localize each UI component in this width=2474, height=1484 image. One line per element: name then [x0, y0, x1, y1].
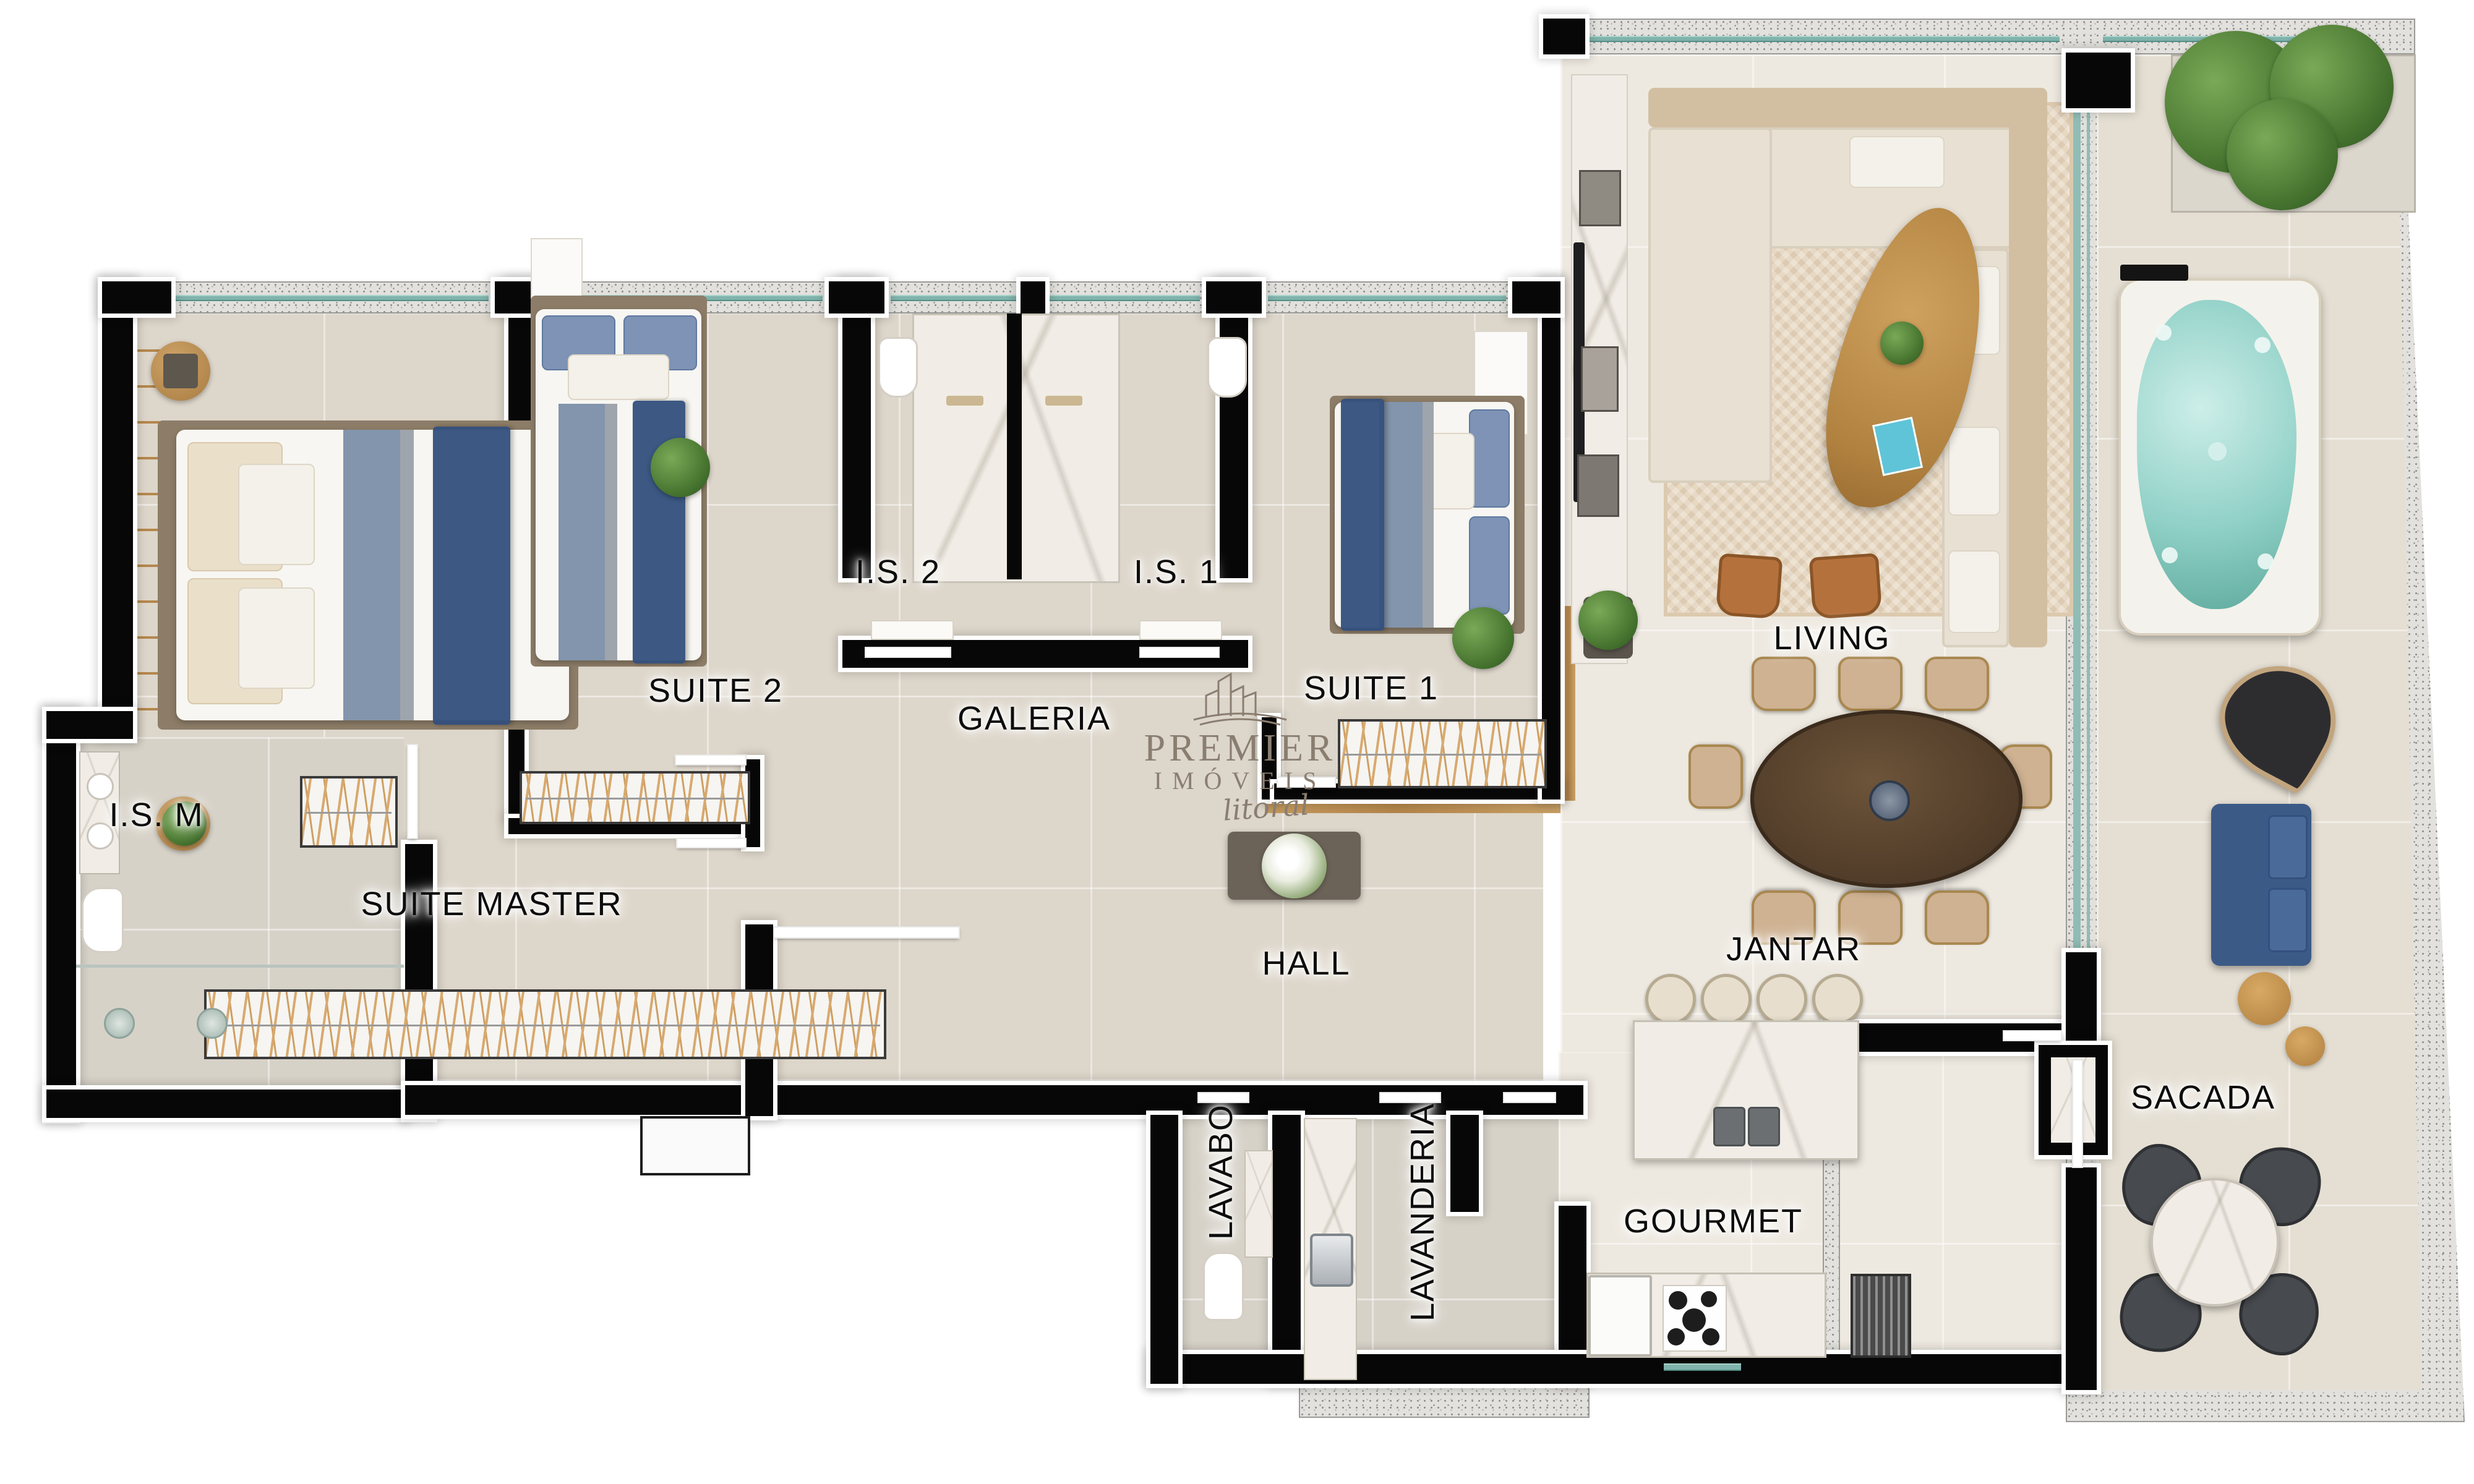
- hot-tub-jet: [2155, 325, 2172, 341]
- shower-fixture-is2: [946, 396, 983, 406]
- pier-top-3: [829, 281, 884, 313]
- pier-living-corner: [1543, 19, 1585, 54]
- room-label-sacada: SACADA: [2131, 1078, 2275, 1117]
- artwork: [1577, 454, 1619, 517]
- buildings-logo-icon: [1184, 668, 1296, 730]
- island-stool: [1812, 974, 1863, 1025]
- nightstand-tray: [163, 354, 198, 388]
- hot-tub-water: [2137, 300, 2296, 609]
- hot-tub-control-panel: [2120, 265, 2188, 281]
- room-label-hall: HALL: [1262, 944, 1350, 983]
- door-is1: [1141, 648, 1218, 657]
- bed-runner-shadow: [1423, 402, 1434, 628]
- door-lavabo: [1199, 1093, 1248, 1102]
- toilet-lavabo: [1203, 1252, 1244, 1321]
- room-label-is1: I.S. 1: [1134, 553, 1219, 591]
- accent-chair-leather: [1716, 553, 1783, 620]
- hot-tub-jet: [2162, 547, 2178, 563]
- wardrobe-rail: [210, 1025, 880, 1026]
- wardrobe-suite-1: [1338, 719, 1547, 788]
- burner: [1701, 1291, 1717, 1307]
- side-table-balcony: [2238, 972, 2291, 1025]
- burner: [1667, 1328, 1685, 1345]
- sofa-pillow: [1948, 427, 2000, 516]
- pier-sacada-top: [2066, 53, 2131, 108]
- window-living-top: [1590, 36, 2060, 42]
- window-suite-1: [1268, 295, 1506, 301]
- sofa-back-right: [2009, 88, 2047, 647]
- floor-plan-canvas: SUITE MASTER I.S. M SUITE 2 I.S. 2 I.S. …: [0, 0, 2474, 1484]
- door-suite-master: [774, 927, 959, 937]
- door-grill-sacada: [2004, 1031, 2061, 1040]
- shower-head-ism-2: [197, 1008, 228, 1039]
- room-label-gourmet: GOURMET: [1624, 1202, 1803, 1240]
- bed-pillow: [1469, 516, 1510, 615]
- burner: [1669, 1291, 1687, 1310]
- wall-is1-suite-1: [1220, 281, 1248, 578]
- dining-chair: [1838, 657, 1903, 711]
- shower-fixture-is1: [1045, 396, 1082, 406]
- burner: [1702, 1328, 1719, 1345]
- wardrobe-rail: [526, 798, 744, 800]
- bed-pillow: [238, 464, 315, 565]
- plant-suite-2: [651, 438, 710, 497]
- bed-runner-shadow: [605, 404, 617, 660]
- shower-divider: [1007, 313, 1022, 579]
- bed-runner: [559, 404, 605, 660]
- room-label-living: LIVING: [1773, 619, 1890, 657]
- door-hall-galeria: [677, 839, 745, 847]
- planter-plant: [1578, 591, 1638, 650]
- wall-service-bottom: [1150, 1354, 2066, 1384]
- sofa-pillow: [1849, 136, 1945, 188]
- sofa-back-top: [1648, 88, 2047, 127]
- toilet-is2: [878, 337, 918, 398]
- shaft-niche: [640, 1116, 750, 1175]
- door-sacada: [2073, 1060, 2082, 1167]
- room-label-lavabo: LAVABO: [1202, 1104, 1240, 1240]
- wardrobe-suite-master-small: [300, 776, 398, 848]
- door-is2: [866, 648, 950, 657]
- wall-sacada-lower: [2066, 1167, 2097, 1390]
- artwork: [1581, 346, 1619, 412]
- bed-suite-1: [1330, 396, 1525, 634]
- daybed-cushion: [2268, 888, 2308, 952]
- dining-centerpiece: [1869, 780, 1910, 821]
- door-suite-2: [676, 756, 745, 764]
- wall-lavabo-left: [1150, 1115, 1178, 1384]
- room-label-galeria: GALERIA: [957, 699, 1111, 738]
- bed-navy-throw: [1341, 399, 1384, 631]
- wardrobe-suite-2: [520, 771, 750, 824]
- room-label-suite-2: SUITE 2: [648, 672, 783, 710]
- bed-pillow: [1469, 409, 1510, 508]
- daybed-balcony: [2211, 804, 2311, 966]
- balcony-round-table: [2151, 1178, 2279, 1307]
- wall-laundry-right-stub: [1450, 1115, 1479, 1212]
- island-stool: [1645, 974, 1696, 1025]
- shower-head-ism: [104, 1008, 135, 1039]
- door-ism: [408, 745, 417, 838]
- plant-suite-1: [1452, 607, 1514, 669]
- window-gourmet: [1664, 1363, 1741, 1371]
- burner: [1682, 1308, 1706, 1332]
- window-bathrooms: [891, 295, 1200, 301]
- kitchen-island: [1633, 1020, 1859, 1160]
- side-table-balcony-2: [2285, 1026, 2325, 1066]
- exterior-shaft-laundry: [1299, 1384, 1590, 1418]
- dining-chair: [1925, 890, 1989, 945]
- brand-category: IMÓVEIS: [1135, 767, 1345, 795]
- hot-tub-jet: [2258, 553, 2274, 569]
- dining-chair: [1689, 744, 1743, 809]
- flower-bouquet: [1262, 834, 1327, 898]
- dining-chair: [1925, 657, 1989, 711]
- door-lavanderia: [1380, 1093, 1440, 1102]
- room-label-lavanderia: LAVANDERIA: [1403, 1102, 1442, 1321]
- sofa-pillow: [1948, 550, 2000, 633]
- daybed-cushion: [2268, 815, 2308, 879]
- wall-ism-top: [46, 711, 133, 739]
- glass-door-living-sacada: [2073, 108, 2081, 955]
- wall-ism-left: [46, 711, 76, 1119]
- hot-tub-jet: [2254, 337, 2271, 353]
- wardrobe-rail: [306, 812, 392, 814]
- room-label-suite-master: SUITE MASTER: [361, 885, 622, 923]
- bed-pillow: [1429, 433, 1475, 510]
- bed-navy-throw: [433, 427, 510, 725]
- toilet-ism: [82, 887, 124, 953]
- wall-suite-2-is2: [842, 281, 871, 578]
- bed-pillow: [238, 587, 315, 689]
- desk-suite-2: [531, 238, 583, 299]
- barbecue-grill: [1851, 1274, 1911, 1358]
- sofa-chaise: [1648, 127, 1772, 483]
- wardrobe-rail: [1344, 754, 1541, 756]
- wall-lavabo-laundry: [1272, 1115, 1301, 1382]
- bed-suite-master: [158, 420, 578, 730]
- vanity-lavabo: [1244, 1150, 1273, 1258]
- pier-top-1: [102, 281, 171, 313]
- artwork: [1579, 170, 1621, 226]
- balcony-plant: [2227, 99, 2338, 210]
- island-stool: [1757, 974, 1807, 1025]
- window-suite-master: [171, 295, 489, 301]
- room-label-jantar: JANTAR: [1726, 930, 1861, 968]
- accent-chair-leather: [1809, 553, 1883, 620]
- door-gourmet: [1504, 1093, 1555, 1102]
- glass-door-living-sacada-2: [2087, 108, 2090, 955]
- shower-glass-ism: [76, 965, 404, 968]
- toilet-is1: [1207, 337, 1247, 398]
- vanity-is2: [871, 620, 954, 640]
- bed-runner: [343, 430, 400, 720]
- brand-name: PREMIER: [1135, 730, 1345, 767]
- bed-runner-shadow: [400, 430, 414, 720]
- vanity-is1: [1139, 620, 1222, 640]
- island-stool: [1701, 974, 1752, 1025]
- laundry-sink: [1310, 1234, 1353, 1287]
- cooktop: [1663, 1285, 1727, 1352]
- room-label-ism: I.S. M: [109, 796, 203, 834]
- wall-left: [102, 281, 133, 736]
- island-sink: [1713, 1107, 1745, 1146]
- island-sink-2: [1748, 1107, 1780, 1146]
- wall-ism-bottom: [46, 1090, 405, 1118]
- room-label-is2: I.S. 2: [855, 553, 941, 591]
- hot-tub-jet: [2208, 442, 2227, 461]
- pier-top-5: [1512, 281, 1560, 313]
- brand-logo: PREMIER IMÓVEIS litoral: [1135, 668, 1345, 829]
- dining-chair: [1752, 657, 1816, 711]
- bed-pillow: [568, 354, 669, 400]
- coffee-table-plant: [1880, 322, 1924, 365]
- fridge: [1588, 1275, 1652, 1357]
- pier-top-4: [1206, 281, 1262, 313]
- bed-runner: [1379, 402, 1423, 628]
- wardrobe-suite-master: [204, 989, 886, 1059]
